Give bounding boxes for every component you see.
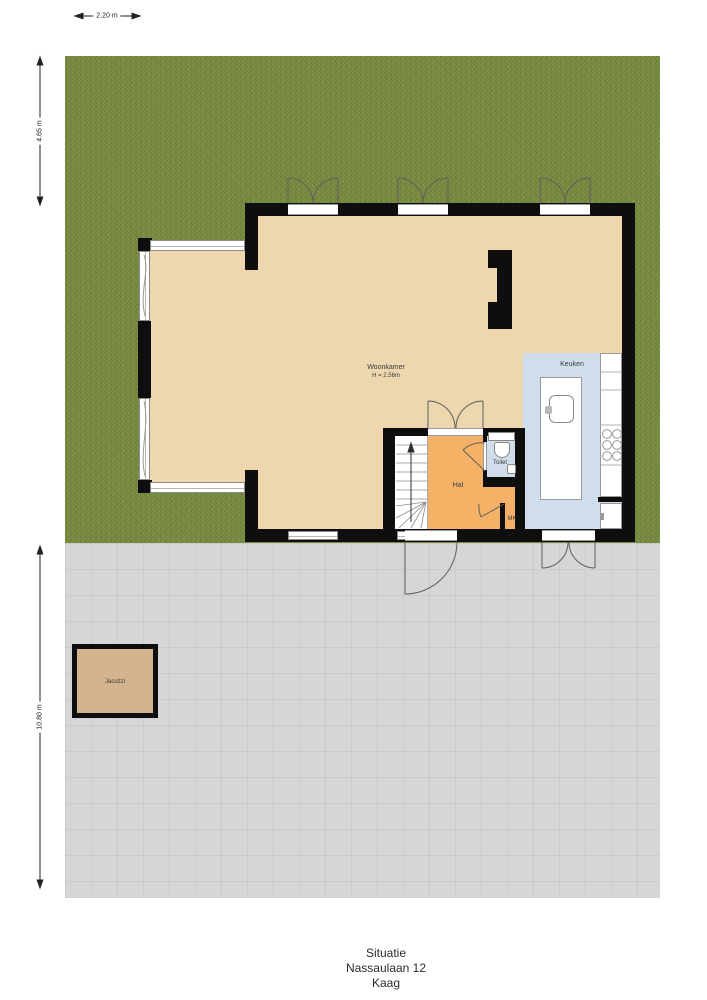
wall-toilet-bottom	[483, 477, 515, 487]
woonkamer-ceiling-height: H = 2.56m	[367, 372, 405, 380]
wall-hal-left	[383, 428, 395, 542]
title-block: Situatie Nassaulaan 12 Kaag	[246, 946, 526, 991]
title-drawing-type: Situatie	[246, 946, 526, 961]
toilet-cistern	[488, 432, 515, 441]
room-label-hal: Hal	[453, 482, 464, 490]
dimension-garden-depth: 4.65 m	[37, 117, 44, 144]
room-floor-bay-gap	[245, 270, 258, 470]
window-bottom-woonkamer	[288, 531, 338, 540]
appliance-handle-icon	[601, 513, 604, 520]
door-threshold-garden-2	[398, 204, 448, 215]
title-city: Kaag	[246, 976, 526, 991]
room-floor-bay	[150, 250, 245, 483]
room-label-mk: MK	[508, 515, 517, 523]
dimension-terrace-depth: 10.80 m	[37, 701, 44, 732]
wall-stairs-top	[383, 428, 428, 436]
door-threshold-garden-1	[288, 204, 338, 215]
bay-window-top	[150, 240, 245, 251]
stairs	[395, 436, 428, 529]
wall-counter-stub	[598, 497, 622, 502]
title-address: Nassaulaan 12	[246, 961, 526, 976]
bay-window-left-upper	[139, 251, 150, 321]
room-label-woonkamer: Woonkamer H = 2.56m	[367, 364, 405, 380]
bay-window-left-lower	[139, 398, 150, 480]
wall-left-upper	[245, 203, 258, 270]
kitchen-faucet-icon	[545, 406, 552, 414]
woonkamer-name: Woonkamer	[367, 364, 405, 372]
door-threshold-front	[405, 530, 457, 541]
wall-left-lower	[245, 470, 258, 542]
wall-toilet-right	[515, 436, 525, 542]
room-label-toilet: Toilet	[493, 459, 507, 467]
kitchen-counter	[600, 353, 622, 497]
kitchen-sink	[549, 395, 574, 423]
bay-window-bottom	[150, 482, 245, 493]
door-gap-toilet	[483, 442, 487, 470]
dimension-garden-width: 2.20 m	[93, 13, 120, 20]
room-label-jacuzzi: Jacuzzi	[105, 678, 125, 686]
terrace-area	[65, 543, 660, 898]
door-threshold-terrace	[542, 530, 595, 541]
wall-mk-left	[500, 503, 505, 529]
toilet-sink-icon	[507, 464, 516, 474]
chimney-tab-bottom	[488, 302, 497, 329]
bay-wall-left-mid	[138, 321, 151, 398]
wall-toilet-left-stub-bottom	[483, 470, 487, 477]
chimney-tab-top	[488, 250, 497, 268]
door-threshold-garden-3	[540, 204, 590, 215]
wall-right	[622, 203, 635, 542]
door-threshold-hal	[428, 428, 483, 436]
floor-plan-page: Woonkamer H = 2.56m Keuken Hal Toilet MK…	[0, 0, 707, 1000]
room-label-keuken: Keuken	[560, 361, 584, 369]
toilet-bowl-icon	[494, 442, 510, 458]
chimney	[497, 250, 512, 329]
